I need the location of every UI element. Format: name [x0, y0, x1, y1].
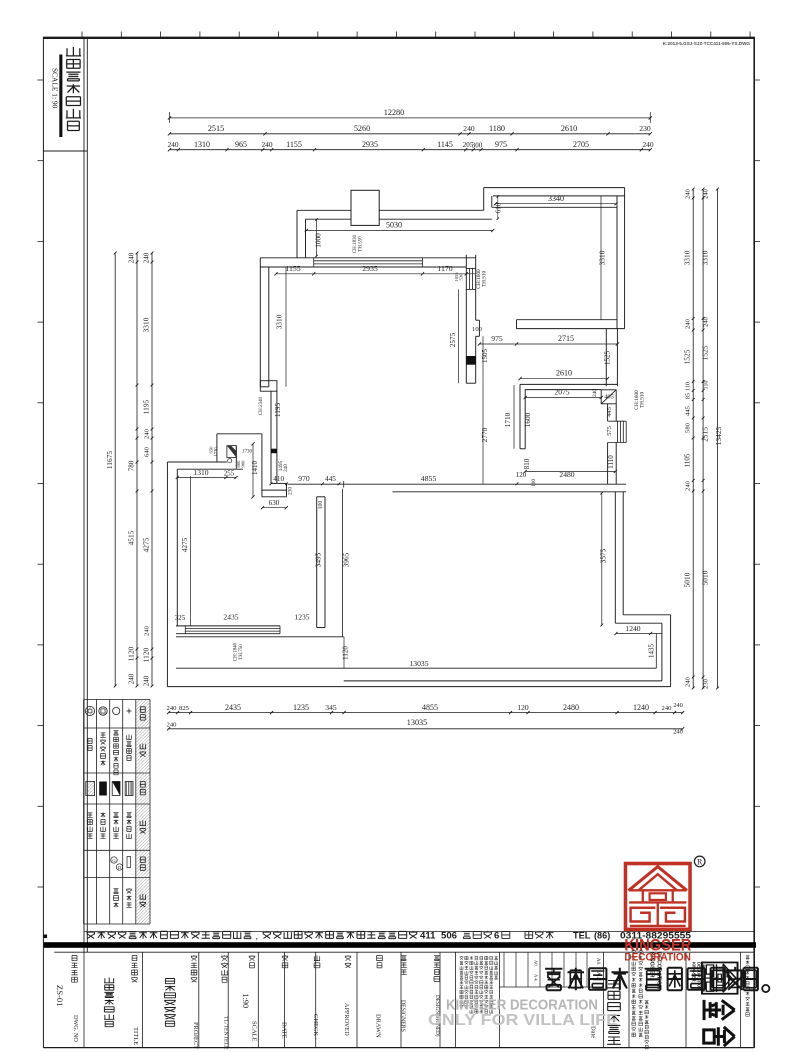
svg-text:2610: 2610 [561, 124, 577, 133]
svg-text:240: 240 [642, 140, 653, 149]
svg-text:DATE: DATE [281, 1022, 288, 1039]
svg-text:3340: 3340 [548, 194, 564, 203]
svg-text:1195: 1195 [274, 403, 282, 418]
svg-text:1310: 1310 [193, 468, 208, 477]
svg-text:TH.550: TH.550 [359, 236, 364, 252]
svg-text:240: 240 [144, 625, 151, 636]
svg-text:1730: 1730 [213, 447, 218, 457]
svg-text:A0.: A0. [534, 960, 539, 967]
svg-text:2715: 2715 [558, 334, 574, 343]
svg-text:5010: 5010 [700, 570, 709, 585]
svg-text:1:90: 1:90 [241, 994, 250, 1009]
svg-text:SCALE 1: 90: SCALE 1: 90 [51, 68, 60, 109]
svg-text:TH.910: TH.910 [482, 270, 488, 287]
svg-text:1170: 1170 [437, 264, 452, 273]
svg-text:230: 230 [639, 124, 651, 133]
svg-text:4275: 4275 [142, 537, 151, 552]
svg-text:DECORATION: DECORATION [697, 962, 702, 991]
svg-text:1505: 1505 [481, 349, 489, 364]
svg-text:3965: 3965 [343, 552, 351, 567]
svg-text:975: 975 [495, 140, 507, 149]
svg-text:325: 325 [175, 615, 186, 622]
svg-text:TH.910: TH.910 [640, 391, 646, 408]
svg-text:410: 410 [273, 475, 284, 483]
svg-text:300: 300 [472, 142, 483, 150]
svg-text:TH.750: TH.750 [239, 644, 244, 660]
svg-text:575: 575 [606, 426, 613, 436]
svg-text:345: 345 [325, 703, 337, 712]
svg-text:2770: 2770 [481, 427, 489, 442]
svg-text:1240: 1240 [625, 624, 640, 633]
svg-text:TL/TENTELE: TL/TENTELE [223, 1016, 229, 1050]
svg-text:CH:2340: CH:2340 [259, 396, 264, 415]
svg-text:CH:1840: CH:1840 [234, 642, 239, 661]
svg-text:2935: 2935 [362, 140, 378, 149]
svg-text:1310: 1310 [194, 140, 210, 149]
svg-text:1120: 1120 [142, 647, 151, 662]
svg-text:3310: 3310 [700, 250, 709, 265]
svg-text:DECORATION: DECORATION [624, 951, 691, 963]
svg-text:1155: 1155 [286, 140, 302, 149]
svg-text:2515: 2515 [208, 124, 224, 133]
svg-text:DRAWN: DRAWN [375, 1014, 382, 1038]
svg-text:2435: 2435 [225, 703, 241, 712]
svg-text:1105: 1105 [684, 453, 692, 467]
svg-text:825: 825 [179, 705, 190, 712]
svg-text:405: 405 [604, 394, 614, 401]
svg-text:4515: 4515 [127, 530, 136, 545]
svg-text:12280: 12280 [384, 108, 404, 117]
svg-text:3310: 3310 [142, 317, 151, 332]
svg-text:240: 240 [167, 140, 178, 149]
svg-text:ZS-01: ZS-01 [55, 985, 65, 1006]
svg-text:1730: 1730 [242, 450, 253, 455]
svg-text:240: 240 [685, 676, 692, 687]
svg-text:2935: 2935 [362, 264, 378, 273]
svg-text:3575: 3575 [600, 548, 608, 563]
svg-text:120: 120 [517, 703, 529, 712]
svg-text:640: 640 [144, 446, 151, 457]
svg-text:240: 240 [463, 124, 475, 133]
svg-text:85: 85 [685, 393, 692, 399]
svg-text:2610: 2610 [556, 369, 572, 378]
svg-text:1155: 1155 [285, 264, 300, 273]
svg-text:810: 810 [523, 458, 531, 469]
svg-text:240: 240 [143, 252, 151, 263]
svg-text:CH:1830: CH:1830 [353, 234, 358, 253]
svg-text:A 4.: A 4. [534, 974, 539, 982]
svg-text:240: 240 [685, 480, 692, 491]
svg-text:506: 506 [441, 931, 457, 942]
svg-text:A0.: A0. [595, 958, 600, 965]
svg-text:1410: 1410 [251, 461, 259, 476]
svg-text:240: 240 [283, 464, 289, 472]
svg-text:965: 965 [235, 140, 247, 149]
svg-text:240: 240 [144, 428, 151, 439]
svg-text:240: 240 [702, 316, 709, 327]
svg-text:530: 530 [459, 273, 464, 281]
svg-text:100: 100 [318, 501, 324, 510]
svg-text:240: 240 [143, 675, 151, 686]
svg-text:1435: 1435 [648, 644, 656, 659]
svg-text:13035: 13035 [407, 718, 427, 727]
svg-text:R: R [697, 857, 703, 866]
svg-text:100: 100 [531, 479, 537, 487]
svg-text:1110: 1110 [607, 455, 615, 469]
svg-text:,: , [256, 931, 259, 941]
svg-text:1000: 1000 [314, 233, 322, 248]
svg-text:3310: 3310 [598, 250, 607, 265]
svg-text:2705: 2705 [573, 140, 589, 149]
svg-text:ONLY FOR VILLA LIFE: ONLY FOR VILLA LIFE [428, 1012, 618, 1029]
svg-text:2480: 2480 [563, 703, 579, 712]
svg-text:4855: 4855 [421, 474, 437, 483]
svg-text:240: 240 [685, 318, 692, 329]
svg-text:1235: 1235 [293, 703, 309, 712]
svg-text:975: 975 [491, 334, 503, 343]
svg-text:11675: 11675 [105, 451, 114, 470]
svg-text:110: 110 [685, 382, 692, 391]
svg-text:240: 240 [685, 188, 692, 199]
svg-text:630: 630 [269, 499, 280, 507]
svg-text:240: 240 [167, 721, 178, 728]
svg-text:TEL: TEL [573, 931, 591, 941]
svg-text:5260: 5260 [354, 124, 370, 133]
svg-text:445: 445 [606, 407, 613, 417]
svg-text:5010: 5010 [683, 572, 692, 587]
svg-text:6: 6 [494, 931, 499, 942]
svg-text:411: 411 [420, 931, 436, 942]
svg-text:(86): (86) [594, 931, 610, 941]
svg-text:4855: 4855 [422, 703, 438, 712]
svg-text:2575: 2575 [449, 332, 457, 347]
svg-text:DWG. NO: DWG. NO [72, 1015, 79, 1042]
svg-text:900: 900 [241, 460, 246, 468]
svg-text:1600: 1600 [524, 412, 532, 427]
svg-text:3310: 3310 [275, 314, 284, 329]
svg-text:255: 255 [224, 470, 235, 477]
svg-text:240: 240 [167, 705, 178, 712]
svg-text:TITLE: TITLE [132, 1027, 139, 1045]
svg-text:2075: 2075 [554, 388, 569, 397]
svg-text:DESIGNERS: DESIGNERS [400, 1000, 406, 1032]
svg-text:240: 240 [128, 252, 136, 263]
svg-text:1195: 1195 [142, 399, 151, 414]
svg-text:3310: 3310 [683, 250, 692, 265]
svg-text:580: 580 [685, 422, 692, 433]
svg-text:1120: 1120 [342, 646, 350, 660]
svg-text:240: 240 [662, 705, 673, 712]
svg-text:1240: 1240 [633, 703, 649, 712]
svg-text:100: 100 [472, 326, 483, 333]
svg-text:1525: 1525 [604, 351, 612, 366]
svg-text:2515: 2515 [700, 427, 709, 442]
svg-text:110: 110 [702, 380, 709, 389]
svg-text:4275: 4275 [181, 537, 189, 552]
svg-text:240: 240 [673, 729, 683, 736]
svg-text:APPROVED: APPROVED [343, 1003, 350, 1036]
svg-text:1120: 1120 [127, 646, 136, 661]
svg-text:1710: 1710 [504, 412, 512, 427]
svg-text:240: 240 [592, 389, 598, 397]
svg-text:1525: 1525 [700, 345, 709, 360]
svg-text:240: 240 [702, 188, 709, 199]
svg-text:445: 445 [685, 405, 692, 416]
svg-text:240: 240 [673, 702, 683, 709]
svg-text:2435: 2435 [223, 613, 238, 622]
svg-text:3495: 3495 [315, 552, 323, 567]
svg-text:780: 780 [128, 460, 136, 471]
svg-text:230: 230 [288, 487, 294, 495]
svg-text:5030: 5030 [386, 221, 402, 230]
svg-text:1525: 1525 [683, 349, 692, 364]
svg-text:1180: 1180 [489, 124, 505, 133]
svg-text:240: 240 [128, 673, 136, 684]
svg-text:K:2013-5.GSJ-SJZ-TCC411-506-YS: K:2013-5.GSJ-SJZ-TCC411-506-YS.DWG [663, 41, 751, 46]
svg-text:SCALE: SCALE [251, 1021, 258, 1042]
svg-text:1235: 1235 [294, 613, 309, 622]
svg-text:PROJECT: PROJECT [192, 1022, 199, 1049]
svg-text:240: 240 [261, 140, 272, 149]
svg-text:970: 970 [298, 474, 310, 483]
svg-text:445: 445 [325, 475, 336, 483]
svg-text:CHECK: CHECK [312, 1014, 319, 1036]
svg-text:13425: 13425 [714, 426, 723, 445]
svg-text:230: 230 [702, 678, 709, 689]
svg-text:13035: 13035 [410, 659, 429, 668]
svg-text:1145: 1145 [437, 140, 453, 149]
